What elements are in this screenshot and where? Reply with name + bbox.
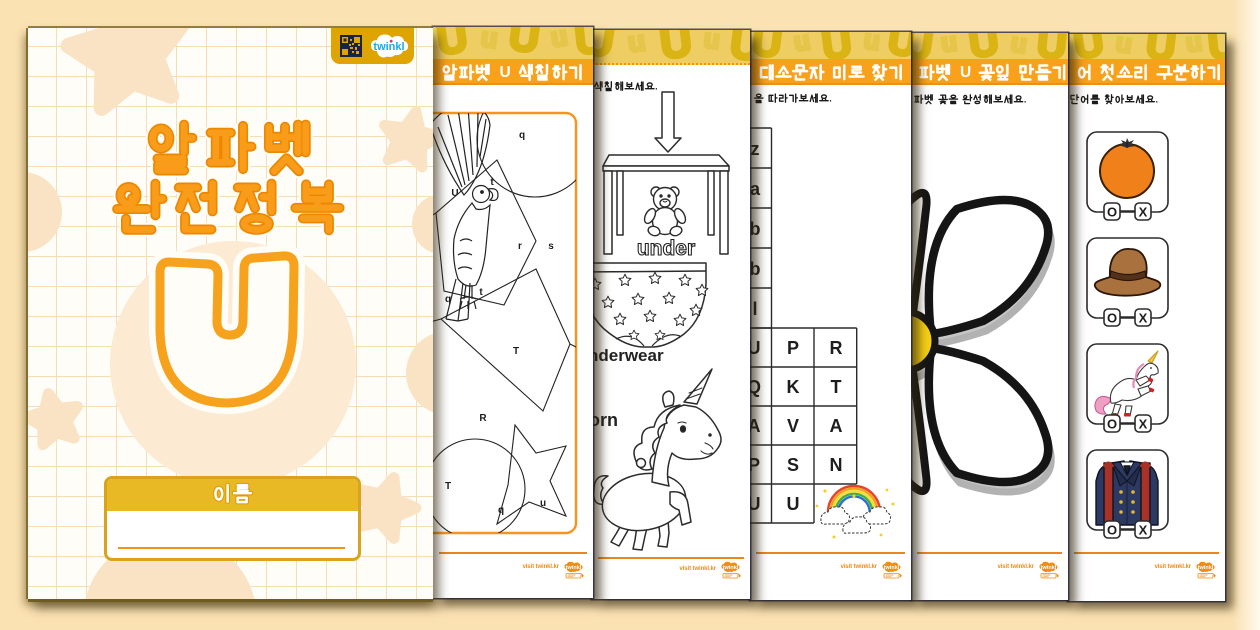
svg-text:X: X — [1139, 417, 1148, 432]
svg-text:under: under — [637, 237, 695, 260]
svg-text:U: U — [750, 338, 761, 358]
svg-text:V: V — [787, 416, 799, 436]
svg-text:U: U — [451, 188, 458, 199]
svg-text:r: r — [518, 241, 522, 252]
svg-text:R: R — [479, 413, 487, 424]
svg-text:Q: Q — [750, 377, 761, 397]
svg-text:twinkl: twinkl — [1041, 565, 1057, 571]
svg-text:U: U — [787, 494, 800, 514]
svg-text:O: O — [1107, 417, 1117, 432]
svg-text:A: A — [750, 416, 761, 436]
svg-text:T: T — [831, 377, 842, 397]
svg-text:X: X — [1139, 205, 1148, 220]
svg-text:twinkl: twinkl — [373, 41, 404, 53]
svg-text:orn: orn — [592, 410, 618, 430]
svg-text:T: T — [513, 346, 519, 357]
svg-text:K: K — [787, 377, 800, 397]
svg-text:S: S — [787, 455, 799, 475]
svg-text:P: P — [750, 455, 760, 475]
svg-text:q: q — [498, 505, 504, 516]
svg-text:nderwear: nderwear — [592, 346, 664, 365]
svg-text:N: N — [830, 455, 843, 475]
svg-text:l: l — [752, 299, 757, 319]
svg-text:z: z — [751, 139, 760, 159]
svg-text:X: X — [1139, 523, 1148, 538]
svg-text:s: s — [548, 241, 554, 252]
svg-text:twinkl: twinkl — [723, 565, 739, 571]
svg-text:X: X — [1139, 311, 1148, 326]
svg-text:a: a — [750, 179, 761, 199]
svg-text:twinkl: twinkl — [566, 565, 582, 571]
svg-text:T: T — [445, 481, 451, 492]
svg-text:q: q — [519, 130, 525, 141]
svg-text:q: q — [445, 294, 451, 305]
svg-text:U: U — [750, 494, 761, 514]
svg-text:u: u — [540, 498, 546, 509]
svg-text:A: A — [830, 416, 843, 436]
svg-text:O: O — [1107, 523, 1117, 538]
svg-text:O: O — [1107, 311, 1117, 326]
svg-text:twinkl: twinkl — [1198, 565, 1214, 571]
svg-text:O: O — [1107, 205, 1117, 220]
svg-text:b: b — [750, 219, 761, 239]
svg-text:b: b — [750, 259, 761, 279]
svg-text:R: R — [830, 338, 843, 358]
svg-text:twinkl: twinkl — [884, 565, 900, 571]
svg-text:P: P — [787, 338, 799, 358]
